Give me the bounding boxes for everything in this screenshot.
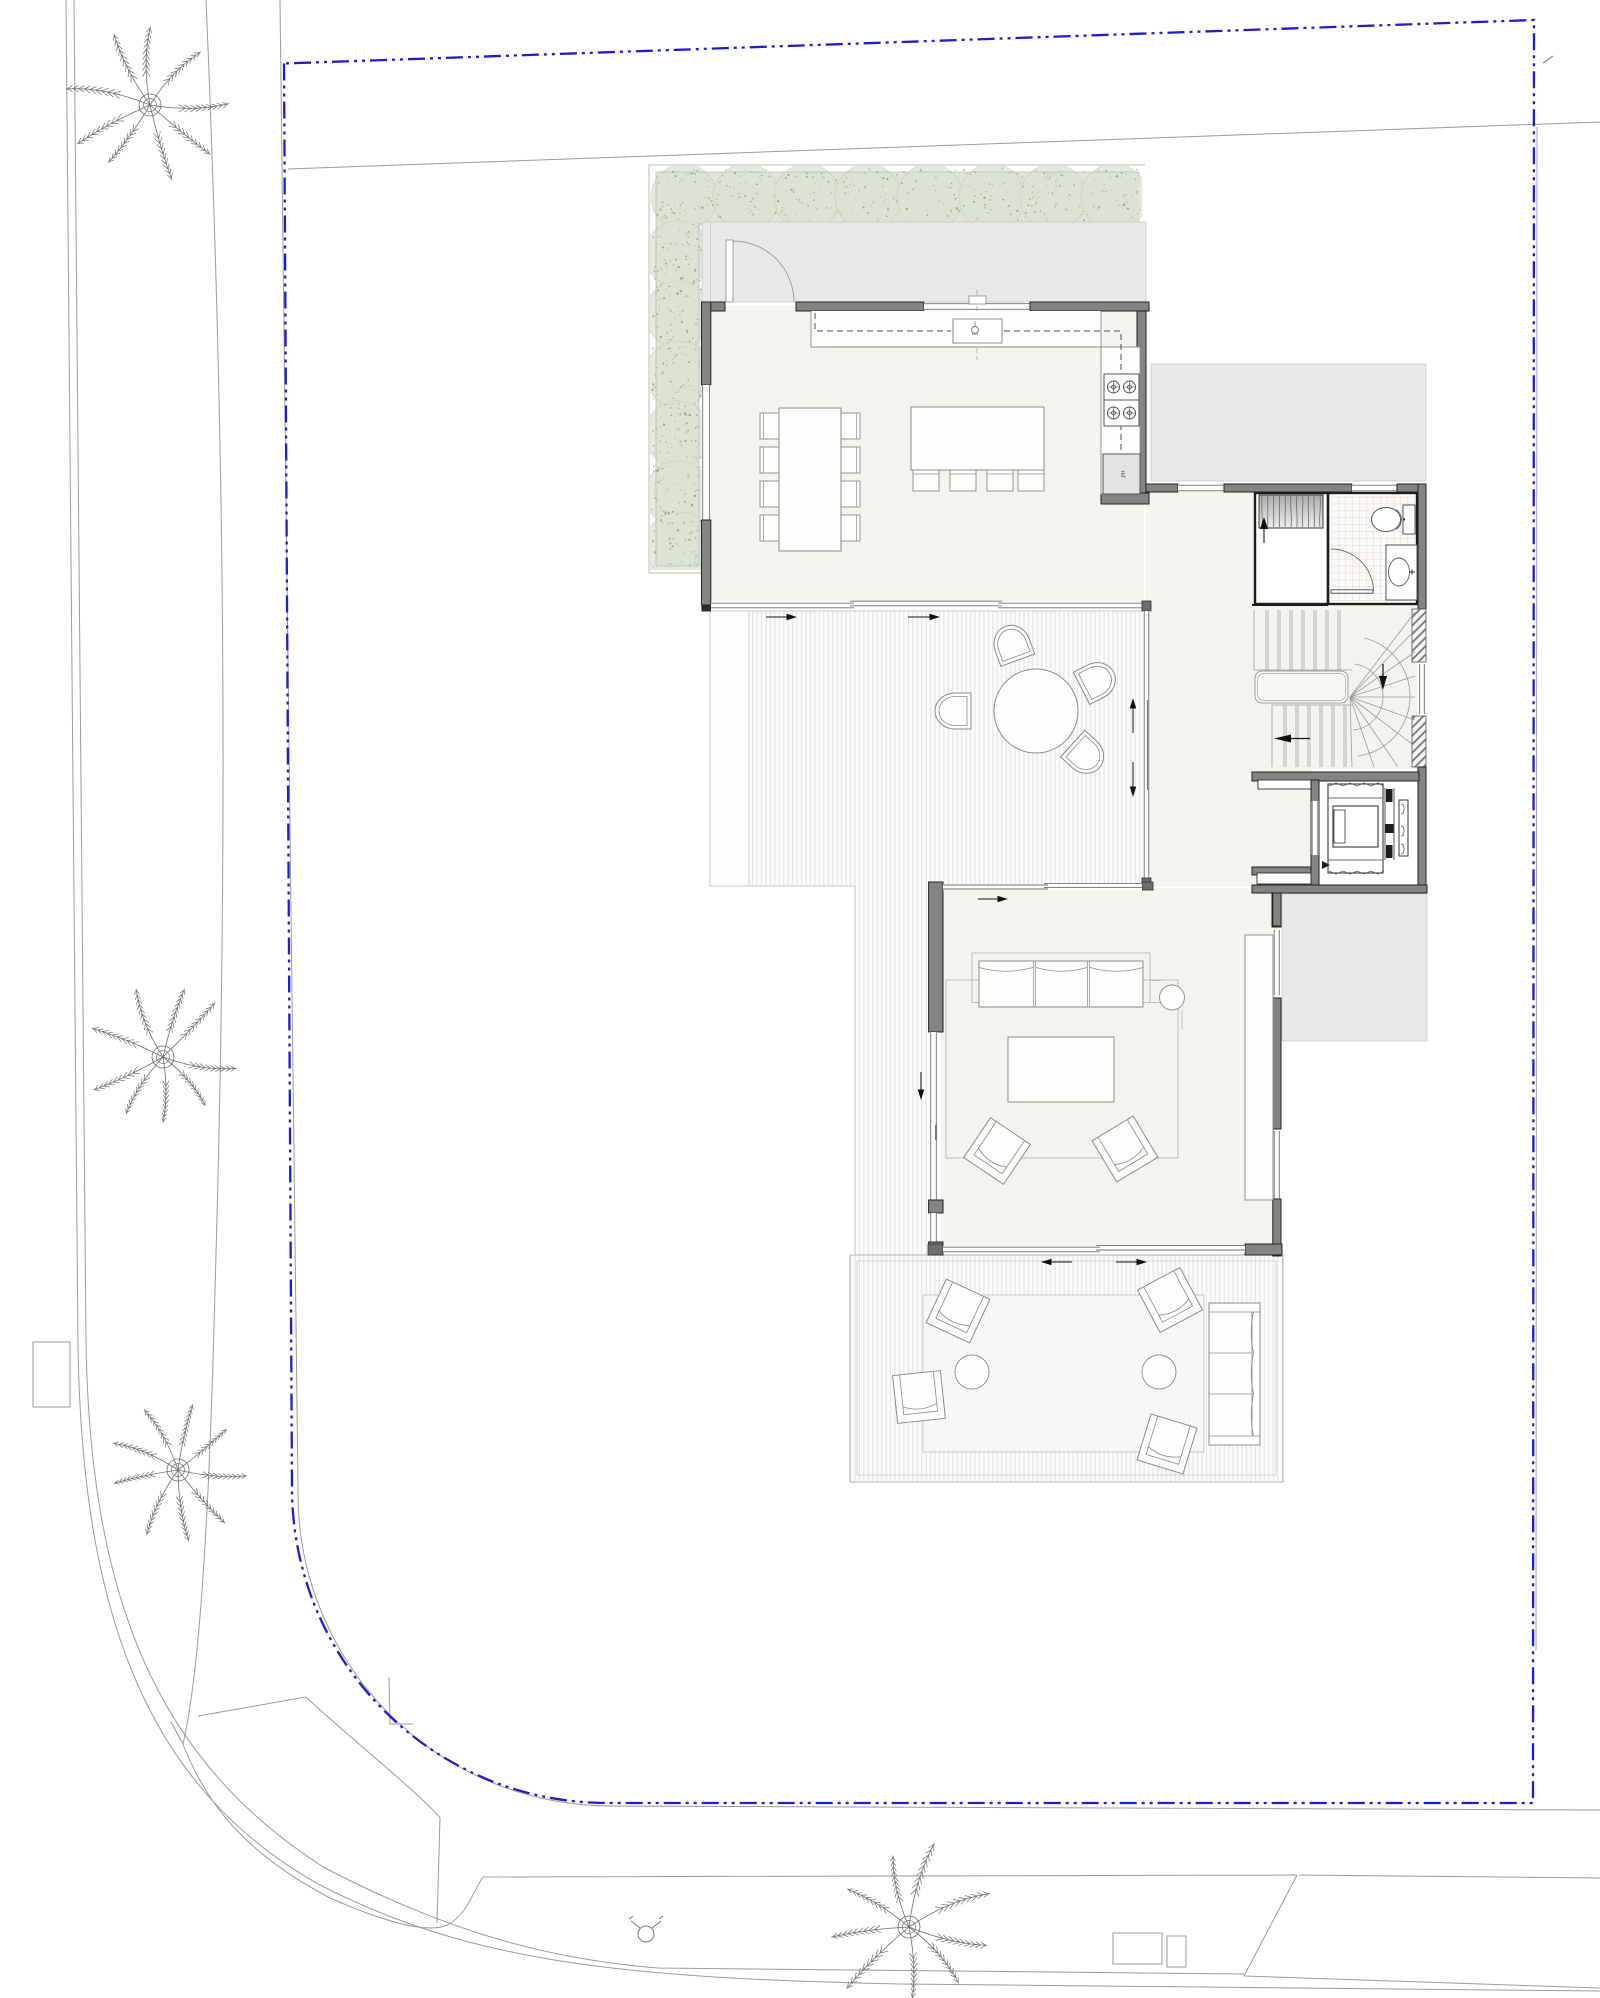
svg-text:ref: ref — [1119, 470, 1125, 477]
